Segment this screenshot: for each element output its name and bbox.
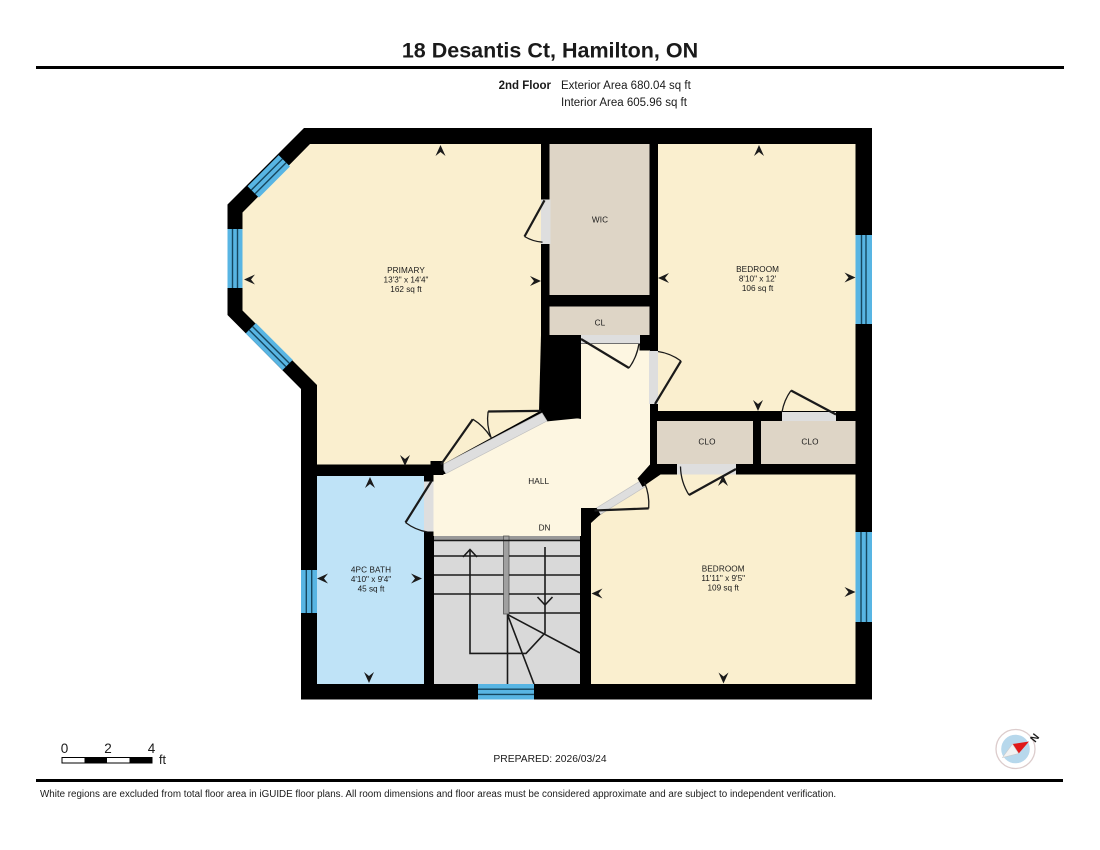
svg-text:18 Desantis Ct, Hamilton, ON: 18 Desantis Ct, Hamilton, ON bbox=[402, 39, 698, 63]
svg-text:WIC: WIC bbox=[592, 216, 608, 225]
svg-text:DN: DN bbox=[539, 524, 551, 533]
svg-text:CLO: CLO bbox=[801, 438, 818, 447]
svg-text:ft: ft bbox=[159, 753, 166, 767]
svg-text:11'11" x 9'5": 11'11" x 9'5" bbox=[701, 574, 745, 583]
svg-text:4PC BATH: 4PC BATH bbox=[351, 566, 391, 575]
svg-text:0: 0 bbox=[61, 741, 69, 756]
svg-text:CL: CL bbox=[595, 319, 606, 328]
svg-text:Interior Area 605.96 sq ft: Interior Area 605.96 sq ft bbox=[561, 97, 688, 109]
svg-text:4: 4 bbox=[148, 741, 156, 756]
svg-text:8'10" x 12': 8'10" x 12' bbox=[739, 274, 777, 283]
svg-text:CLO: CLO bbox=[698, 438, 715, 447]
svg-text:109 sq ft: 109 sq ft bbox=[707, 583, 739, 592]
svg-text:HALL: HALL bbox=[528, 477, 549, 486]
svg-text:2: 2 bbox=[104, 741, 112, 756]
svg-text:BEDROOM: BEDROOM bbox=[702, 565, 745, 574]
svg-text:White regions are excluded fro: White regions are excluded from total fl… bbox=[40, 789, 836, 800]
svg-text:Exterior Area 680.04 sq ft: Exterior Area 680.04 sq ft bbox=[561, 80, 692, 92]
svg-text:PRIMARY: PRIMARY bbox=[387, 266, 425, 275]
svg-text:106 sq ft: 106 sq ft bbox=[742, 284, 774, 293]
svg-text:45 sq ft: 45 sq ft bbox=[358, 584, 386, 593]
svg-text:2nd Floor: 2nd Floor bbox=[499, 80, 552, 92]
svg-text:4'10" x 9'4": 4'10" x 9'4" bbox=[351, 575, 391, 584]
svg-text:162 sq ft: 162 sq ft bbox=[390, 285, 422, 294]
svg-text:BEDROOM: BEDROOM bbox=[736, 265, 779, 274]
svg-text:PREPARED: 2026/03/24: PREPARED: 2026/03/24 bbox=[493, 754, 606, 765]
svg-text:13'3" x 14'4": 13'3" x 14'4" bbox=[384, 275, 429, 284]
